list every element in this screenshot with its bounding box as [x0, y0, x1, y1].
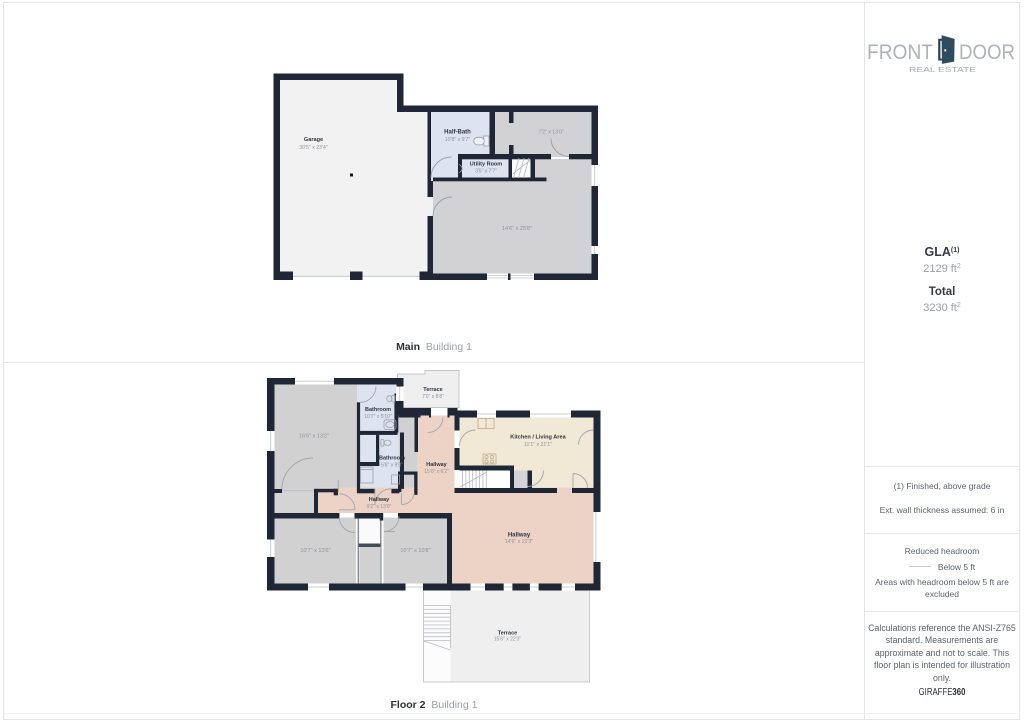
svg-text:REAL ESTATE: REAL ESTATE — [909, 65, 976, 74]
svg-text:30'5" x 23'4": 30'5" x 23'4" — [299, 145, 328, 151]
svg-text:11'1" x 21'1": 11'1" x 21'1" — [524, 442, 552, 448]
svg-text:Garage: Garage — [304, 137, 323, 143]
svg-text:5'8" x 9'0": 5'8" x 9'0" — [381, 463, 403, 469]
svg-text:10'7" x 5'10": 10'7" x 5'10" — [364, 414, 392, 420]
svg-text:7'2" x 13'0": 7'2" x 13'0" — [538, 130, 564, 136]
svg-text:Bathroom: Bathroom — [365, 407, 391, 413]
svg-text:Hallway: Hallway — [508, 533, 531, 539]
svg-text:7'0" x 8'8": 7'0" x 8'8" — [422, 394, 444, 400]
svg-text:14'6" x 25'8": 14'6" x 25'8" — [502, 226, 532, 232]
svg-text:3'5" x 7'7": 3'5" x 7'7" — [475, 169, 497, 175]
svg-text:Hallway: Hallway — [369, 497, 390, 503]
svg-text:Bathroom: Bathroom — [379, 456, 405, 462]
svg-text:15'0" x 6'2": 15'0" x 6'2" — [424, 469, 449, 475]
svg-text:Utility Room: Utility Room — [470, 162, 502, 168]
svg-text:10'7" x 10'8": 10'7" x 10'8" — [400, 548, 430, 554]
svg-text:14'6" x 22'3": 14'6" x 22'3" — [505, 539, 534, 545]
svg-text:10'8" x 9'7": 10'8" x 9'7" — [445, 137, 471, 143]
svg-text:10'7" x 13'6": 10'7" x 13'6" — [300, 548, 330, 554]
svg-text:15'6" x 22'3": 15'6" x 22'3" — [494, 637, 522, 643]
svg-text:Hallway: Hallway — [426, 462, 447, 468]
svg-text:Kitchen / Living Area: Kitchen / Living Area — [510, 435, 566, 441]
svg-text:Terrace: Terrace — [423, 387, 442, 393]
svg-text:16'6" x 13'2": 16'6" x 13'2" — [299, 434, 329, 440]
svg-text:FRONT: FRONT — [867, 41, 933, 64]
svg-text:Half-Bath: Half-Bath — [444, 130, 471, 136]
svg-text:9'2" x 13'0": 9'2" x 13'0" — [367, 504, 392, 510]
svg-text:DOOR: DOOR — [959, 41, 1015, 64]
